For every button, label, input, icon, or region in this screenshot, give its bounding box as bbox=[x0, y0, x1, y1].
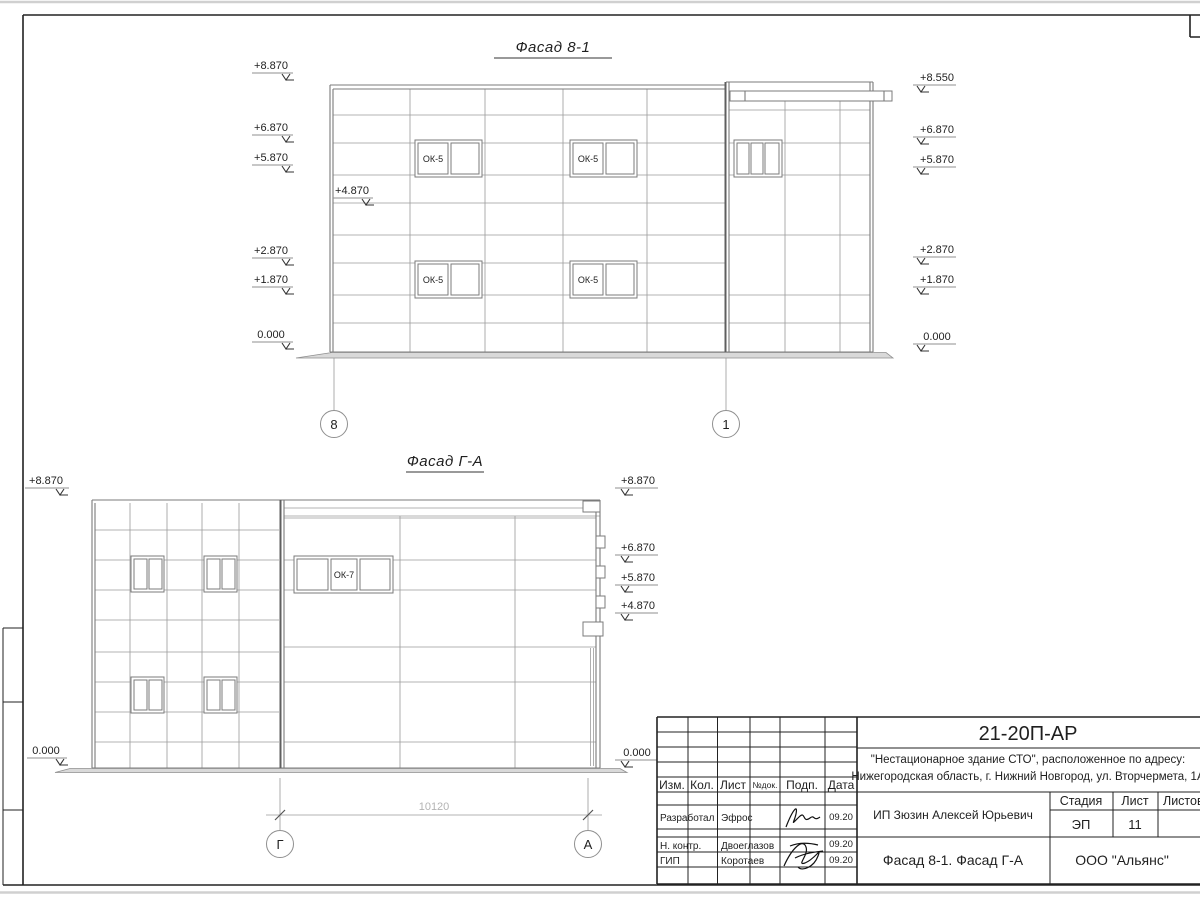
axis-label: 1 bbox=[722, 417, 729, 432]
window-ok5-bottom-right: ОК-5 bbox=[570, 261, 637, 298]
client-name: ИП Зюзин Алексей Юрьевич bbox=[873, 808, 1033, 822]
elevation-marks-right: +8.550 +6.870 +5.870 +2.870 +1.870 0.000 bbox=[913, 72, 956, 351]
date-ncontrol: 09.20 bbox=[829, 839, 853, 850]
col-kol: Кол. bbox=[690, 778, 714, 792]
name-gip: Коротаев bbox=[721, 856, 764, 867]
facade-g-a-title: Фасад Г-А bbox=[407, 453, 483, 470]
col-podp: Подп. bbox=[786, 778, 818, 792]
elevation-marks-left-ga: +8.870 0.000 bbox=[25, 475, 69, 765]
window-ok5-top-right: ОК-5 bbox=[570, 140, 637, 177]
name-developer: Эфрос bbox=[721, 812, 753, 824]
elevation-value: 0.000 bbox=[623, 747, 651, 759]
elevation-value: 0.000 bbox=[923, 331, 951, 343]
window-ok5-top-left: ОК-5 bbox=[415, 140, 482, 177]
elevation-value: +2.870 bbox=[920, 244, 954, 256]
col-ndok: №док. bbox=[753, 780, 778, 790]
facade-g-a: Фасад Г-А bbox=[25, 453, 658, 858]
col-izm: Изм. bbox=[659, 778, 685, 792]
window-small-bottom-1 bbox=[131, 677, 164, 713]
role-gip: ГИП bbox=[660, 856, 680, 867]
elevation-value: +4.870 bbox=[335, 185, 369, 197]
role-ncontrol: Н. контр. bbox=[660, 841, 701, 852]
elevation-value: 0.000 bbox=[257, 329, 285, 341]
axis-bubbles-g-a: Г А bbox=[267, 831, 602, 858]
window-ok5-bottom-left: ОК-5 bbox=[415, 261, 482, 298]
elevation-value: +6.870 bbox=[920, 124, 954, 136]
drawing-canvas: Фасад 8-1 ОК-5 bbox=[0, 0, 1200, 900]
window-label: ОК-5 bbox=[423, 275, 443, 285]
axis-label: 8 bbox=[330, 417, 337, 432]
elevation-value: +5.870 bbox=[920, 154, 954, 166]
dimension-value: 10120 bbox=[419, 801, 450, 813]
project-line1: "Нестационарное здание СТО", расположенн… bbox=[871, 754, 1186, 766]
facade-g-a-linework bbox=[55, 500, 627, 773]
project-line2: Нижегородская область, г. Нижний Новгоро… bbox=[851, 771, 1200, 783]
stage-label: Стадия bbox=[1060, 794, 1103, 808]
name-ncontrol: Двоеглазов bbox=[721, 841, 774, 852]
drawing-sheet: Фасад 8-1 ОК-5 bbox=[0, 0, 1200, 900]
axis-label: А bbox=[584, 837, 593, 852]
dimension-10120: 10120 bbox=[266, 778, 602, 830]
date-developer: 09.20 bbox=[829, 812, 853, 823]
sheet-label: Лист bbox=[1121, 794, 1148, 808]
signature-ncontrol-gip bbox=[784, 843, 823, 869]
elevation-value: +5.870 bbox=[621, 572, 655, 584]
company-name: ООО "Альянс" bbox=[1075, 852, 1169, 868]
sheet-value: 11 bbox=[1128, 817, 1142, 832]
col-list: Лист bbox=[720, 778, 747, 792]
elevation-mark-inner: +4.870 bbox=[333, 185, 374, 205]
elevation-value: +8.870 bbox=[29, 475, 63, 487]
elevation-value: +6.870 bbox=[621, 542, 655, 554]
facade-8-1-title: Фасад 8-1 bbox=[516, 39, 591, 56]
title-block: Изм. Кол. Лист №док. Подп. Дата Разработ… bbox=[657, 717, 1200, 884]
role-developer: Разработал bbox=[660, 812, 715, 824]
elevation-value: +4.870 bbox=[621, 600, 655, 612]
elevation-value: +1.870 bbox=[920, 274, 954, 286]
elevation-value: +2.870 bbox=[254, 245, 288, 257]
drawing-title: Фасад 8-1. Фасад Г-А bbox=[883, 852, 1024, 868]
window-ok7: ОК-7 bbox=[294, 556, 393, 593]
facade-8-1: Фасад 8-1 ОК-5 bbox=[252, 39, 956, 438]
elevation-marks-left: +8.870 +6.870 +5.870 +2.870 +1.870 0.000 bbox=[252, 60, 294, 349]
elevation-value: +6.870 bbox=[254, 122, 288, 134]
elevation-value: +8.870 bbox=[254, 60, 288, 72]
window-small-top-1 bbox=[131, 556, 164, 592]
elevation-marks-right-ga: +8.870 +6.870 +5.870 +4.870 0.000 bbox=[615, 475, 658, 767]
sheets-label: Листов bbox=[1163, 794, 1200, 808]
axis-bubbles-8-1: 8 1 bbox=[321, 358, 740, 438]
stage-value: ЭП bbox=[1072, 817, 1091, 832]
elevation-value: +1.870 bbox=[254, 274, 288, 286]
window-small-bottom-2 bbox=[204, 677, 237, 713]
window-annex-threepane bbox=[734, 140, 782, 177]
doc-code: 21-20П-АР bbox=[979, 723, 1078, 745]
facade-8-1-linework bbox=[296, 82, 893, 358]
window-label: ОК-5 bbox=[423, 154, 443, 164]
elevation-value: +8.870 bbox=[621, 475, 655, 487]
signature-developer bbox=[786, 809, 820, 827]
window-label: ОК-5 bbox=[578, 275, 598, 285]
elevation-value: +5.870 bbox=[254, 152, 288, 164]
axis-label: Г bbox=[276, 837, 283, 852]
date-gip: 09.20 bbox=[829, 855, 853, 866]
window-small-top-2 bbox=[204, 556, 237, 592]
elevation-value: +8.550 bbox=[920, 72, 954, 84]
window-label: ОК-5 bbox=[578, 154, 598, 164]
elevation-value: 0.000 bbox=[32, 745, 60, 757]
window-label: ОК-7 bbox=[334, 570, 354, 580]
